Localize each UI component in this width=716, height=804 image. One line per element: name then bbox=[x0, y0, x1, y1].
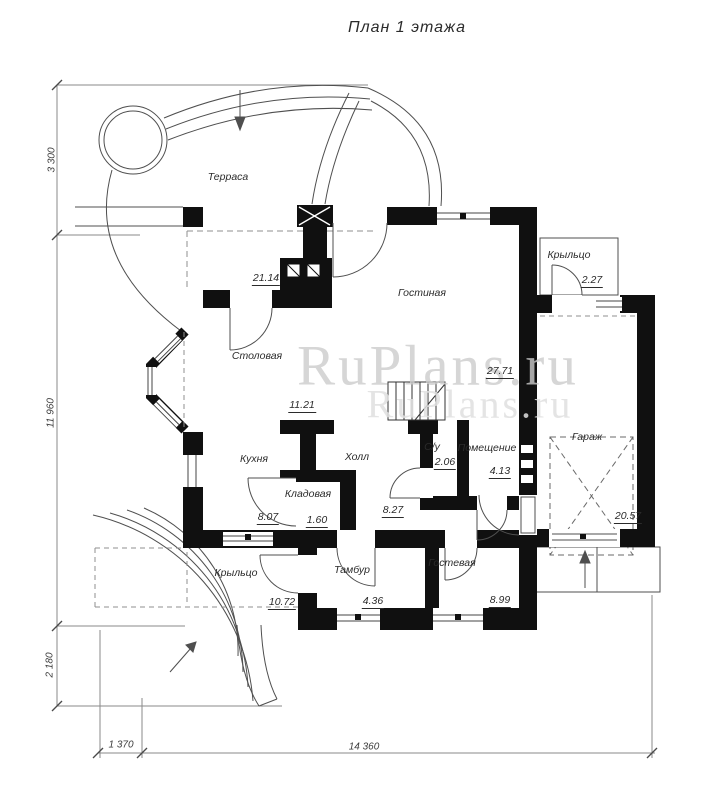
window-bay-2 bbox=[146, 367, 156, 395]
window-tambour-bottom bbox=[337, 610, 380, 628]
window-bay-1 bbox=[152, 333, 182, 363]
window-living-top bbox=[437, 209, 490, 223]
door-hall-guest bbox=[445, 530, 477, 580]
window-bay-3 bbox=[152, 399, 182, 429]
door-pantry bbox=[248, 478, 296, 526]
porch-left-arrow bbox=[170, 642, 196, 672]
door-wc bbox=[390, 468, 433, 498]
window-garage-top bbox=[596, 297, 622, 311]
window-guest-bottom bbox=[433, 610, 483, 628]
window-kitchen-bottom bbox=[223, 532, 273, 546]
door-terrace-living bbox=[333, 207, 387, 277]
floor-plan-page: План 1 этажа RuPlans.ru RuPlans.ru Терра… bbox=[0, 0, 716, 804]
garage-gate bbox=[549, 529, 620, 547]
door-porch-tambour bbox=[260, 555, 317, 593]
terrace-column-circle bbox=[99, 106, 167, 174]
door-porch-right bbox=[552, 265, 582, 313]
wall-niches bbox=[521, 445, 533, 483]
watermark-ghost: RuPlans.ru bbox=[367, 381, 574, 428]
plan-title: План 1 этажа bbox=[348, 19, 466, 37]
floor-plan-svg bbox=[0, 0, 716, 804]
garage-entry-arrow bbox=[580, 551, 590, 588]
garage-apron bbox=[533, 547, 660, 592]
window-kitchen-left bbox=[183, 455, 203, 487]
door-hall-tambour bbox=[337, 530, 375, 586]
door-terrace-dining bbox=[230, 290, 272, 350]
terrace-entry-arrow bbox=[235, 90, 245, 130]
